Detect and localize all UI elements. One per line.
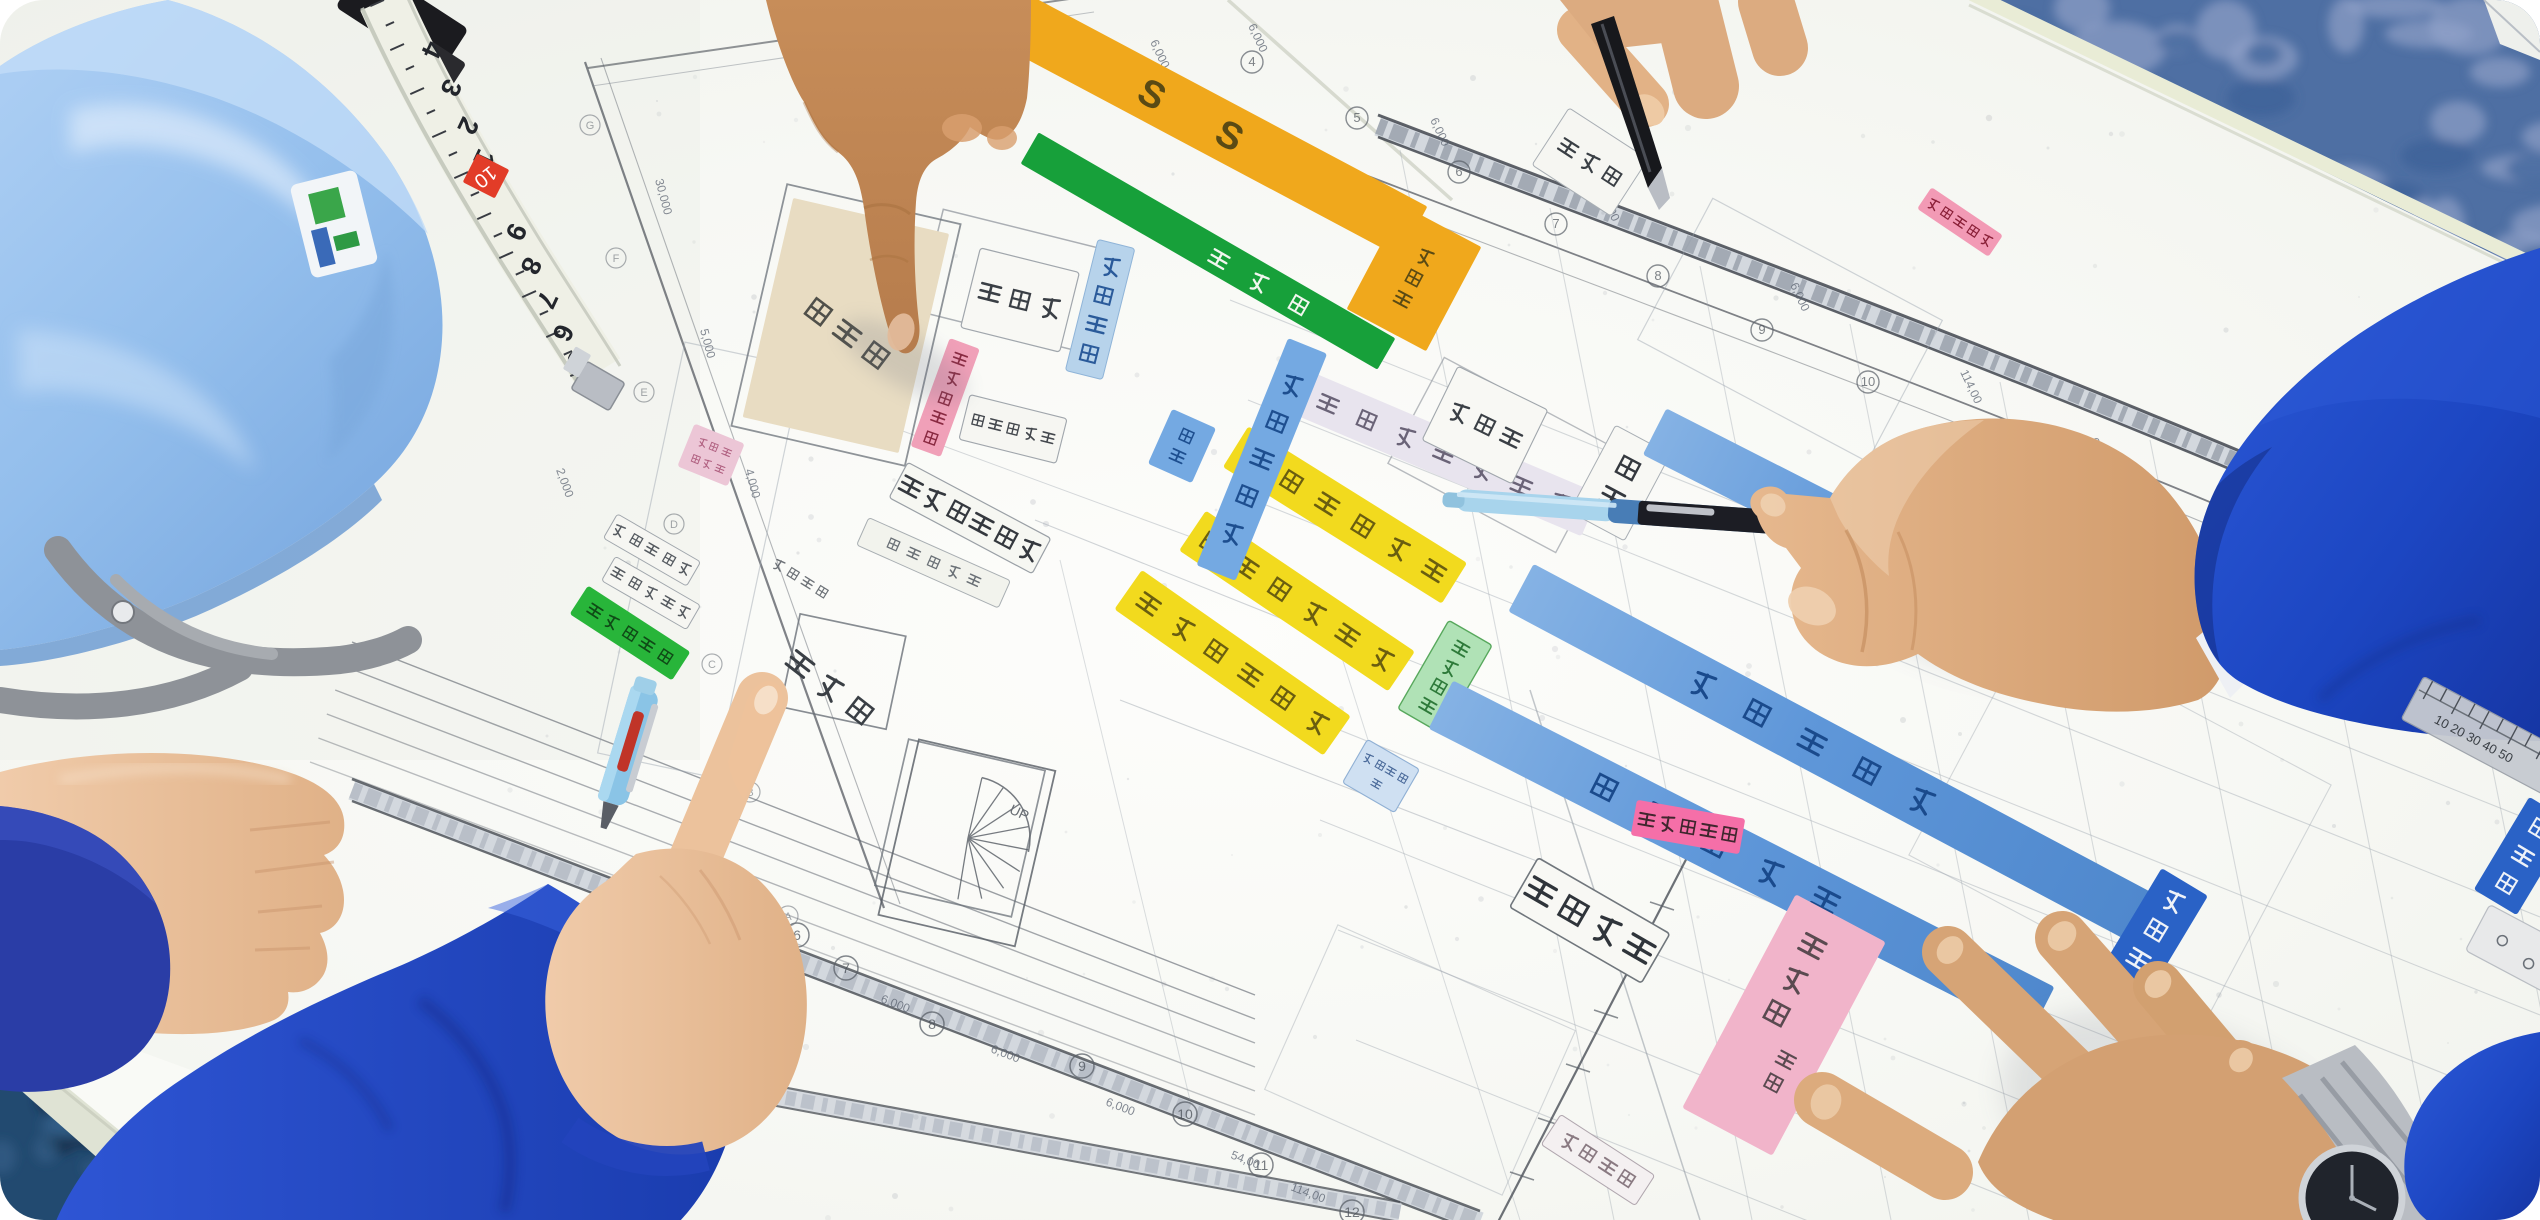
svg-text:C: C [708,659,716,671]
svg-text:F: F [613,253,620,265]
svg-text:9: 9 [1078,1058,1086,1074]
svg-text:5: 5 [1353,110,1360,125]
svg-text:E: E [640,387,647,399]
svg-text:9: 9 [1758,322,1765,337]
svg-text:7: 7 [1552,216,1559,231]
svg-text:D: D [670,519,678,531]
svg-text:8: 8 [1654,268,1661,283]
svg-text:7: 7 [842,960,850,976]
svg-text:6: 6 [1455,164,1462,179]
svg-text:4: 4 [1248,54,1255,69]
svg-text:10: 10 [1861,374,1875,389]
svg-text:G: G [586,120,595,132]
svg-text:12: 12 [1344,1204,1360,1220]
svg-text:8: 8 [928,1016,936,1032]
svg-text:10: 10 [1177,1106,1193,1122]
